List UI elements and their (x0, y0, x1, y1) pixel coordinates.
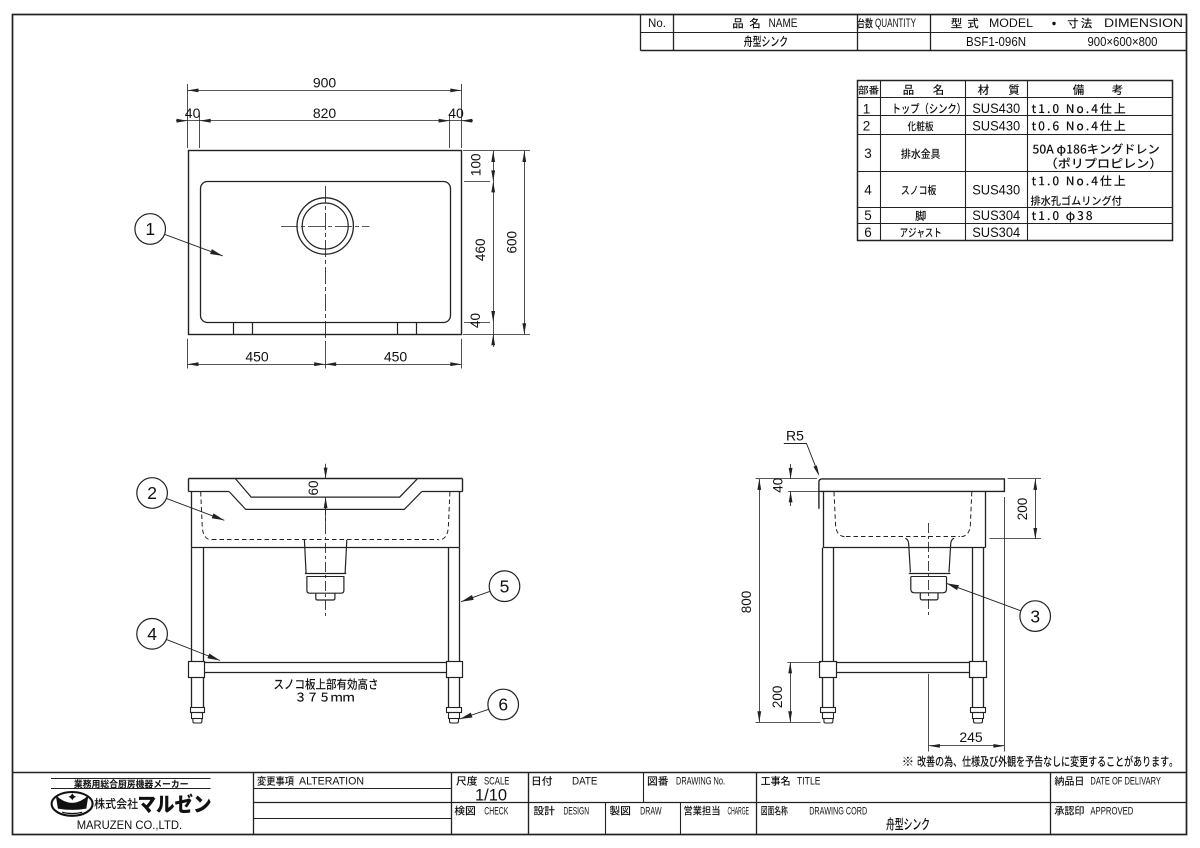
svg-text:460: 460 (473, 239, 488, 262)
svg-text:2: 2 (147, 483, 157, 503)
svg-text:40: 40 (770, 478, 785, 493)
svg-text:5: 5 (864, 208, 872, 223)
svg-text:4: 4 (864, 183, 872, 198)
svg-text:BSF1-096N: BSF1-096N (966, 34, 1026, 49)
svg-text:6: 6 (864, 225, 872, 240)
svg-text:450: 450 (384, 348, 408, 364)
svg-text:DRAWING No.: DRAWING No. (676, 776, 725, 788)
svg-text:450: 450 (245, 348, 269, 364)
svg-text:6: 6 (498, 695, 508, 715)
svg-text:800: 800 (739, 591, 754, 614)
svg-text:200: 200 (770, 686, 785, 709)
svg-text:820: 820 (313, 105, 337, 121)
svg-text:DATE OF DELIVARY: DATE OF DELIVARY (1090, 776, 1161, 788)
svg-text:DATE: DATE (572, 776, 598, 788)
svg-text:SUS430: SUS430 (972, 101, 1020, 116)
svg-text:100: 100 (468, 154, 483, 177)
svg-text:600: 600 (504, 231, 519, 254)
svg-text:DRAWING CORD: DRAWING CORD (809, 805, 867, 817)
svg-text:DESIGN: DESIGN (564, 805, 590, 817)
svg-text:R5: R5 (786, 427, 804, 443)
svg-text:TITLE: TITLE (797, 776, 821, 788)
svg-text:NAME: NAME (769, 18, 798, 30)
svg-text:900×600×800: 900×600×800 (1088, 34, 1158, 49)
svg-text:ALTERATION: ALTERATION (299, 776, 364, 788)
svg-text:SUS304: SUS304 (972, 225, 1020, 240)
svg-text:1: 1 (863, 101, 871, 116)
svg-text:3: 3 (1030, 606, 1040, 626)
svg-text:200: 200 (1015, 498, 1030, 521)
svg-text:SUS304: SUS304 (972, 208, 1020, 223)
svg-text:40: 40 (448, 105, 464, 121)
svg-text:MODEL: MODEL (989, 18, 1034, 30)
svg-text:SUS430: SUS430 (972, 119, 1020, 134)
svg-text:CHARGE: CHARGE (728, 805, 750, 817)
svg-text:60: 60 (306, 480, 321, 495)
svg-text:No.: No. (648, 18, 666, 30)
svg-text:QUANTITY: QUANTITY (875, 18, 916, 30)
svg-text:1: 1 (145, 219, 155, 239)
svg-text:DRAW: DRAW (640, 805, 662, 817)
svg-text:4: 4 (147, 624, 157, 644)
svg-text:APPROVED: APPROVED (1090, 805, 1133, 817)
svg-text:2: 2 (863, 119, 871, 134)
svg-text:40: 40 (468, 313, 483, 328)
svg-text:3: 3 (864, 146, 872, 161)
svg-text:1/10: 1/10 (475, 786, 507, 804)
svg-text:5: 5 (500, 576, 510, 596)
svg-text:40: 40 (185, 105, 201, 121)
svg-text:MARUZEN CO.,LTD.: MARUZEN CO.,LTD. (77, 818, 182, 832)
svg-text:DIMENSION: DIMENSION (1104, 18, 1183, 30)
svg-text:245: 245 (959, 729, 983, 745)
svg-text:SUS430: SUS430 (972, 182, 1020, 197)
svg-text:900: 900 (313, 75, 337, 91)
svg-text:CHECK: CHECK (484, 805, 508, 817)
